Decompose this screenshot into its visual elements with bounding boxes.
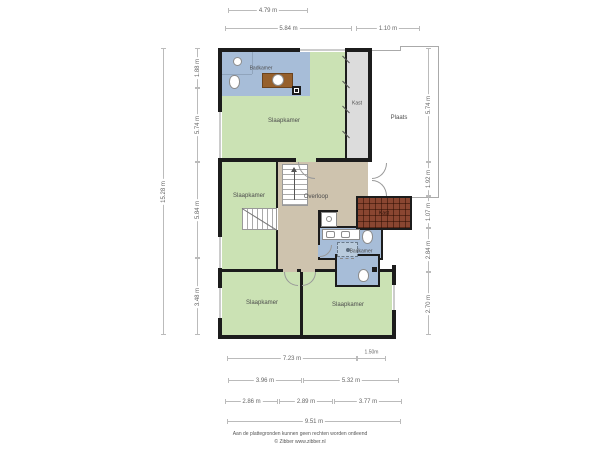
floorplan-page: Badkamer Slaapkamer Kast Plaats Slaapkam…	[0, 0, 600, 450]
door-arc	[372, 163, 387, 179]
dimension-top-3: 1.10 m	[356, 28, 420, 29]
shower-drain-icon	[292, 86, 301, 95]
footer-line2: © Zibber www.zibber.nl	[0, 439, 600, 447]
wall-bottom	[218, 335, 396, 339]
stairs-arrow-icon	[294, 172, 295, 200]
room-label-badkamer-top: Badkamer	[250, 67, 273, 72]
dimension-right-4: 2.84 m	[428, 228, 429, 272]
dimension-bottom-2a: 3.96 m	[228, 380, 302, 381]
room-label-slaapkamer-bottom-right: Slaapkamer	[332, 302, 364, 308]
room-label-kast-strip: Kast	[352, 102, 362, 107]
room-label-badkamer-mid: Badkamer	[350, 250, 373, 255]
sliding-door-icon	[340, 258, 354, 259]
dimension-right-3: 1.07 m	[428, 196, 429, 228]
door-arc	[372, 180, 387, 196]
dimension-bottom-1a: 7.23 m	[227, 358, 357, 359]
room-label-overloop: Overloop	[304, 194, 328, 200]
room-label-slaapkamer-top: Slaapkamer	[268, 118, 300, 124]
plaats-outline	[438, 46, 439, 198]
dimension-left-2: 5.74 m	[197, 88, 198, 162]
dimension-bottom-3a: 2.86 m	[225, 401, 278, 402]
dimension-bottom-3c: 3.77 m	[334, 401, 402, 402]
footer-line1: Aan de plattegronden kunnen geen rechten…	[0, 431, 600, 439]
dimension-bottom-2b: 5.32 m	[303, 380, 399, 381]
window	[218, 288, 222, 318]
footer-disclaimer: Aan de plattegronden kunnen geen rechten…	[0, 431, 600, 446]
stairs-arrow-icon	[291, 167, 297, 172]
wall-interior	[222, 158, 296, 162]
room-label-plaats: Plaats	[391, 115, 408, 121]
room-overloop	[278, 231, 320, 272]
room-label-slaapkamer-bottom-left: Slaapkamer	[246, 300, 278, 306]
plaats-outline	[372, 50, 400, 51]
room-label-slaapkamer-left: Slaapkamer	[233, 193, 265, 199]
window	[300, 48, 345, 52]
room-label-kast-tiled: Kast	[379, 212, 389, 217]
dimension-top-1: 4.79 m	[228, 10, 308, 11]
wall-interior	[276, 230, 278, 269]
window	[218, 112, 222, 158]
window	[392, 285, 396, 310]
vent-icon	[372, 267, 377, 272]
dimension-top-2: 5.84 m	[225, 28, 352, 29]
wall-right-upper	[368, 52, 372, 162]
toilet-icon	[229, 75, 240, 89]
dimension-right-1: 5.74 m	[428, 48, 429, 162]
dimension-right-5: 2.70 m	[428, 272, 429, 335]
wall-top	[218, 48, 372, 52]
toilet-icon	[362, 230, 373, 244]
plaats-outline	[400, 46, 438, 47]
dimension-left-total: 15.28 m	[163, 48, 164, 335]
window	[218, 237, 222, 268]
sink-icon	[326, 231, 335, 238]
sink-icon	[233, 57, 242, 66]
sink-icon	[341, 231, 350, 238]
dimension-bottom-1b: 1.50m	[357, 358, 386, 359]
wall-interior	[316, 158, 372, 162]
dimension-bottom-total: 9.51 m	[227, 421, 401, 422]
dimension-left-4: 3.48 m	[197, 258, 198, 335]
dimension-left-3: 5.84 m	[197, 162, 198, 258]
dimension-left-1: 1.88 m	[197, 48, 198, 88]
toilet-icon	[358, 269, 369, 282]
basin-icon	[326, 216, 332, 222]
dimension-bottom-3b: 2.89 m	[279, 401, 333, 402]
wall-kast-strip	[345, 52, 347, 158]
wall-interior	[222, 269, 283, 272]
wall-interior	[276, 162, 278, 208]
basin-icon	[272, 74, 284, 86]
dimension-right-2: 1.92 m	[428, 162, 429, 196]
